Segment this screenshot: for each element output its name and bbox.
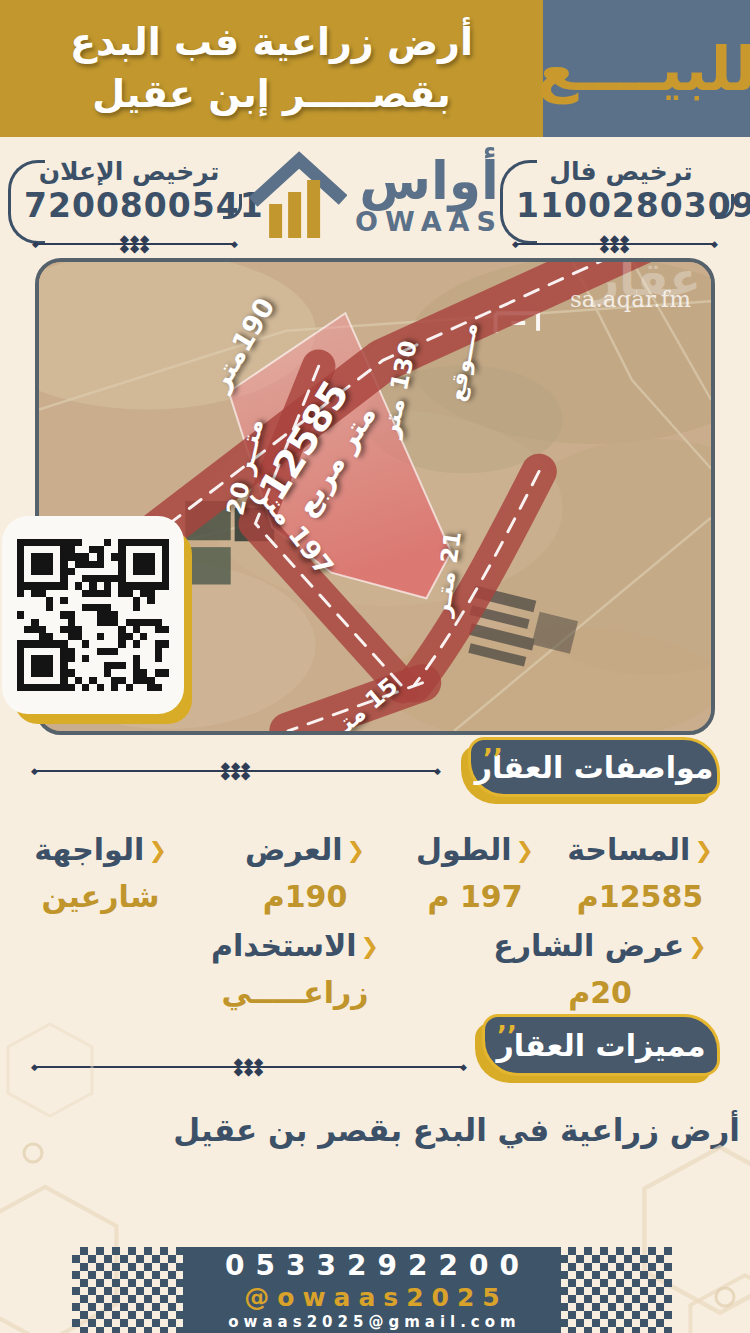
pixel-pattern-left bbox=[72, 1247, 184, 1333]
owaas-logo-text: أواس OWAAS bbox=[355, 155, 503, 237]
social-handle: @owaas2025 bbox=[236, 1283, 507, 1312]
spec-area-label: المساحة bbox=[567, 832, 690, 867]
diamond-icon: ◆ bbox=[711, 239, 718, 249]
spec-frontage-value: شارعين bbox=[18, 879, 183, 914]
chevron-left-icon: ❮ bbox=[516, 838, 534, 863]
logo-arabic-name: أواس bbox=[359, 155, 499, 207]
fal-license-label: ترخيص فال bbox=[516, 158, 726, 186]
license-divider-left: ◆◆◆ ◆◆◆◆◆ bbox=[36, 243, 234, 245]
pixel-pattern-right bbox=[560, 1247, 672, 1333]
features-divider: ◆◆◆ ◆◆◆◆◆ bbox=[35, 1066, 463, 1068]
diamond-icon: ◆ bbox=[512, 239, 519, 249]
circle-decor-icon bbox=[20, 1140, 46, 1166]
spec-length-label: الطول bbox=[416, 832, 512, 867]
diamond-divider-icon: ◆◆◆ ◆◆◆ bbox=[221, 762, 252, 780]
spec-street-width: ❮عرض الشارع 20م bbox=[490, 928, 710, 1010]
diamond-divider-icon: ◆◆◆ ◆◆◆ bbox=[600, 235, 631, 253]
contact-bar: 0533292200 @owaas2025 owaas2025@gmail.co… bbox=[183, 1247, 561, 1333]
features-section-title: مميزات العقار bbox=[496, 1028, 705, 1063]
owaas-logo: أواس OWAAS bbox=[247, 148, 503, 243]
spec-usage-value: زراعـــــي bbox=[195, 975, 395, 1010]
quote-marks-icon: ’’ bbox=[497, 1021, 517, 1051]
chevron-left-icon: ❮ bbox=[148, 838, 166, 863]
specs-section-header: ’’ مواصفات العقار bbox=[468, 737, 720, 797]
spec-frontage: ❮الواجهة شارعين bbox=[18, 832, 183, 914]
diamond-icon: ◆ bbox=[31, 1062, 38, 1072]
spec-usage-label: الاستخدام bbox=[211, 928, 357, 963]
title-line-2: بقصـــــر إبن عقيل bbox=[92, 69, 450, 120]
diamond-icon: ◆ bbox=[231, 239, 238, 249]
spec-width: ❮العرض 190م bbox=[225, 832, 385, 914]
license-divider-right: ◆◆◆ ◆◆◆◆◆ bbox=[516, 243, 714, 245]
diamond-divider-icon: ◆◆◆ ◆◆◆ bbox=[120, 235, 151, 253]
logo-latin-name: OWAAS bbox=[355, 207, 503, 237]
for-sale-badge: للبيــــع bbox=[543, 0, 750, 137]
house-bars-logo-icon bbox=[247, 148, 347, 243]
qr-card bbox=[2, 516, 184, 714]
diamond-icon: ◆ bbox=[460, 1062, 467, 1072]
phone-number: 0533292200 bbox=[214, 1249, 530, 1282]
specs-section-title: مواصفات العقار bbox=[475, 750, 714, 785]
quote-marks-icon: ’’ bbox=[483, 744, 503, 774]
ad-license-label: ترخيص الإعلان bbox=[24, 158, 234, 186]
spec-street-width-label: عرض الشارع bbox=[493, 928, 684, 963]
fal-license: ترخيص فال 1100280309 bbox=[516, 158, 726, 225]
watermark-domain: sa.aqar.fm bbox=[570, 286, 691, 312]
spec-street-width-value: 20م bbox=[490, 975, 710, 1010]
specs-divider: ◆◆◆ ◆◆◆◆◆ bbox=[35, 770, 437, 772]
diamond-icon: ◆ bbox=[32, 239, 39, 249]
chevron-left-icon: ❮ bbox=[688, 934, 706, 959]
ad-license-number: 7200800541 bbox=[24, 186, 234, 225]
header-banner: أرض زراعية فب البدع بقصـــــر إبن عقيل ل… bbox=[0, 0, 750, 137]
chevron-left-icon: ❮ bbox=[694, 838, 712, 863]
title-line-1: أرض زراعية فب البدع bbox=[70, 17, 473, 68]
email-address: owaas2025@gmail.com bbox=[223, 1313, 520, 1331]
diamond-divider-icon: ◆◆◆ ◆◆◆ bbox=[234, 1058, 265, 1076]
chevron-left-icon: ❮ bbox=[347, 838, 365, 863]
spec-width-label: العرض bbox=[245, 832, 343, 867]
real-estate-poster: أرض زراعية فب البدع بقصـــــر إبن عقيل ل… bbox=[0, 0, 750, 1333]
spec-width-value: 190م bbox=[225, 879, 385, 914]
diamond-icon: ◆ bbox=[31, 766, 38, 776]
fal-license-number: 1100280309 bbox=[516, 186, 726, 225]
spec-usage: ❮الاستخدام زراعـــــي bbox=[195, 928, 395, 1010]
spec-frontage-label: الواجهة bbox=[34, 832, 144, 867]
spec-area-value: 12585م bbox=[555, 879, 725, 914]
spec-area: ❮المساحة 12585م bbox=[555, 832, 725, 914]
poster-title: أرض زراعية فب البدع بقصـــــر إبن عقيل bbox=[0, 0, 543, 137]
ad-license: ترخيص الإعلان 7200800541 bbox=[24, 158, 234, 225]
spec-length-value: 197 م bbox=[395, 879, 555, 914]
feature-description: أرض زراعية في البدع بقصر بن عقيل bbox=[260, 1112, 740, 1148]
chevron-left-icon: ❮ bbox=[361, 934, 379, 959]
features-section-header: ’’ مميزات العقار bbox=[482, 1014, 720, 1076]
spec-length: ❮الطول 197 م bbox=[395, 832, 555, 914]
hexagon-decor-icon bbox=[0, 1020, 100, 1120]
qr-code bbox=[17, 539, 169, 691]
hexagon-decor-icon bbox=[680, 1270, 750, 1333]
circle-decor-icon bbox=[712, 1284, 738, 1310]
diamond-icon: ◆ bbox=[434, 766, 441, 776]
